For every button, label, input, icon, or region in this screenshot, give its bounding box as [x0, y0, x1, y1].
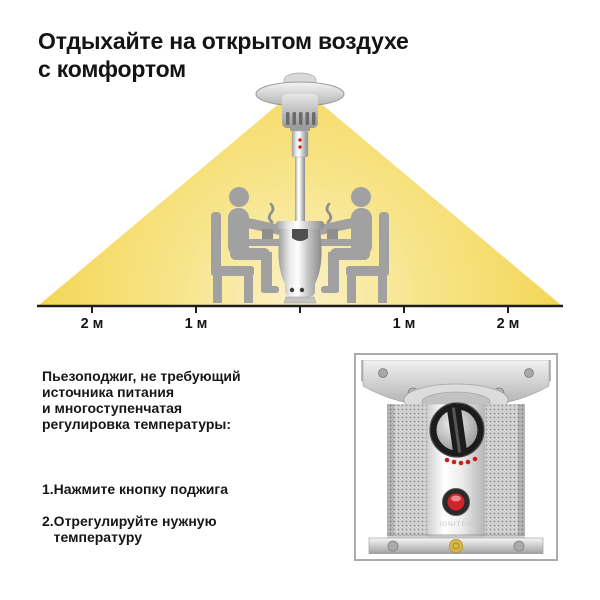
screw-icon	[514, 541, 524, 551]
heater-neck	[292, 131, 308, 157]
distance-label: 2 м	[497, 316, 520, 332]
distance-label: 2 м	[81, 316, 104, 332]
chair-leg	[213, 274, 222, 303]
shell-shadow	[387, 404, 394, 536]
chair-leg	[244, 274, 253, 303]
distance-label: 1 м	[185, 316, 208, 332]
screw-icon	[379, 369, 388, 378]
control-panel-illustration: IGNITER	[361, 360, 551, 554]
product-infographic: { "window": { "width": 600, "height": 60…	[0, 0, 600, 600]
step-item: 1.Нажмите кнопку поджига	[42, 481, 322, 497]
features-text-block: Пьезоподжиг, не требующий источника пита…	[42, 352, 322, 577]
distance-label: 1 м	[393, 316, 416, 332]
pilot-indicator	[298, 138, 301, 141]
control-panel-photo: IGNITER	[354, 353, 558, 561]
screw-icon	[388, 541, 398, 551]
features-intro: Пьезоподжиг, не требующий источника пита…	[42, 368, 322, 432]
ignition-button	[443, 489, 470, 516]
distance-axis	[37, 306, 563, 313]
person-head	[229, 187, 249, 207]
shell-seam	[387, 534, 525, 538]
screw-icon	[525, 369, 534, 378]
tank-vent-hole	[300, 288, 304, 292]
tank-opening	[292, 229, 308, 241]
tank-vent-hole	[290, 288, 294, 292]
chair-back	[211, 212, 221, 272]
person-foot	[261, 286, 279, 293]
brass-badge	[450, 540, 463, 553]
heater-foot	[284, 297, 316, 303]
features-steps: 1.Нажмите кнопку поджига 2.Отрегулируйте…	[42, 465, 322, 561]
pilot-indicator	[298, 145, 301, 148]
panel-label: IGNITER	[439, 521, 472, 528]
shell-shadow	[518, 404, 525, 536]
step-item: 2.Отрегулируйте нужную температуру	[42, 513, 322, 545]
heater-collar	[290, 126, 310, 131]
base-flange	[276, 221, 324, 229]
heat-coverage-diagram: 2 м 1 м 1 м 2 м	[0, 0, 600, 340]
